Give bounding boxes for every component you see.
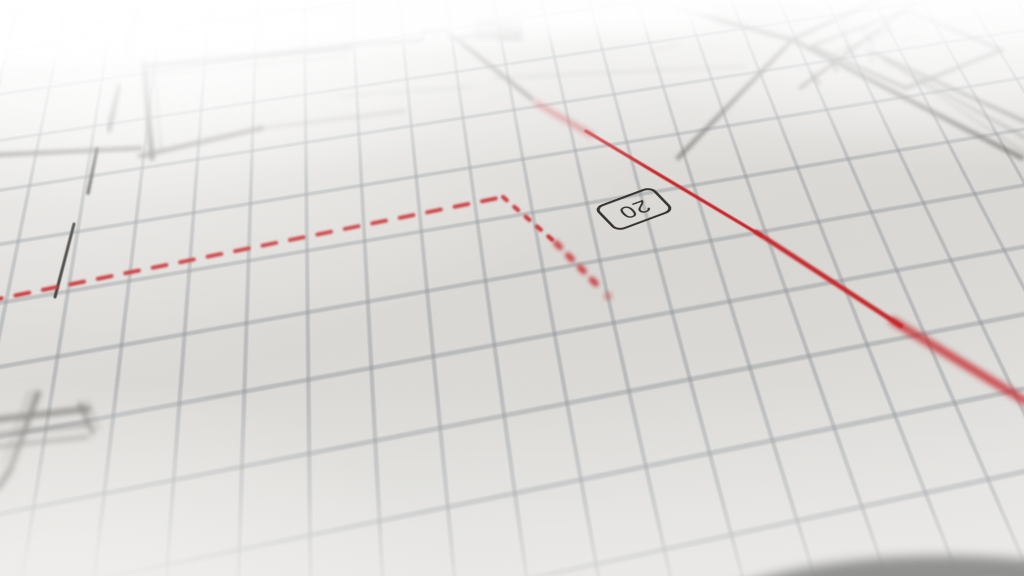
- foreground-layer: [0, 0, 1024, 576]
- level-marker-label: 20: [613, 197, 654, 222]
- defocused-object-blob: [635, 556, 1024, 576]
- blueprint-scene: 20: [0, 0, 1024, 576]
